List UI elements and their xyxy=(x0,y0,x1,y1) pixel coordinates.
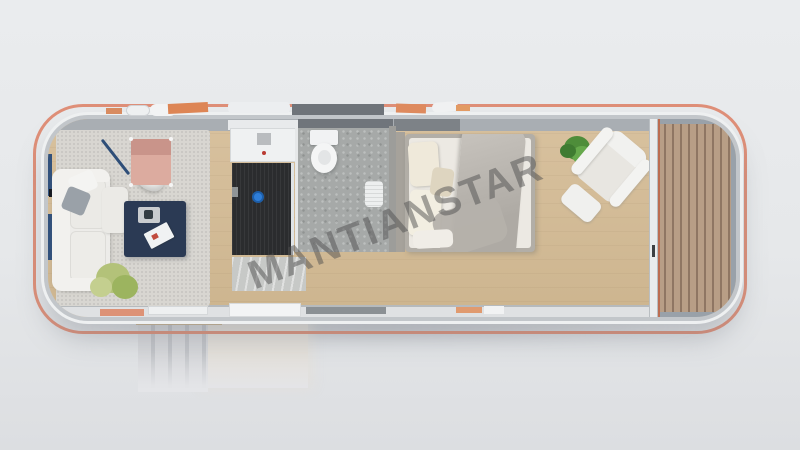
lounge-chair-seat xyxy=(131,155,171,185)
bottom-wall-accent-white xyxy=(484,306,504,314)
shower-fixture xyxy=(232,187,238,197)
bottom-wall-accent-orange xyxy=(456,307,482,313)
top-window-dark-2 xyxy=(394,119,460,131)
stairs-fade xyxy=(138,352,208,392)
roof-panel-orange xyxy=(456,105,470,111)
potted-plant-living-leaf xyxy=(112,275,138,299)
bottom-window xyxy=(306,307,386,314)
chair-foot xyxy=(169,183,173,187)
armchair xyxy=(550,122,657,232)
roof-skylight xyxy=(228,102,290,113)
potted-plant-bedroom-leaf xyxy=(560,144,576,158)
toilet-seat xyxy=(318,150,331,165)
entry-step-white xyxy=(148,306,208,315)
roof-vent xyxy=(432,101,459,113)
bottom-entry-door xyxy=(229,303,301,317)
chair-foot xyxy=(129,183,133,187)
chair-foot xyxy=(129,137,133,141)
roof-panel-orange xyxy=(396,103,426,113)
roof-panel-orange xyxy=(168,102,208,114)
glass-door xyxy=(649,119,658,317)
magazine xyxy=(144,222,175,249)
magazine-cover-art xyxy=(151,233,159,240)
deck-edge-trim xyxy=(658,119,660,317)
wooden-deck xyxy=(658,119,736,317)
entry-awning-orange xyxy=(100,309,144,316)
roof-panel-orange xyxy=(106,108,122,114)
vanity-knob xyxy=(262,151,266,155)
tray-item xyxy=(144,210,153,219)
render-stage: MANTIANSTAR xyxy=(0,0,800,450)
lounge-chair xyxy=(131,139,171,185)
shower-knob xyxy=(252,191,264,203)
chair-foot xyxy=(169,137,173,141)
potted-plant-living-leaf xyxy=(90,277,112,297)
coffee-table xyxy=(124,201,186,257)
vanity-sink xyxy=(257,133,271,145)
roof-vent xyxy=(126,105,150,116)
kitchen-vanity xyxy=(230,128,298,162)
landing-fade xyxy=(206,352,308,388)
roof-window-dark xyxy=(292,104,384,115)
glass-door-handle xyxy=(652,245,655,257)
